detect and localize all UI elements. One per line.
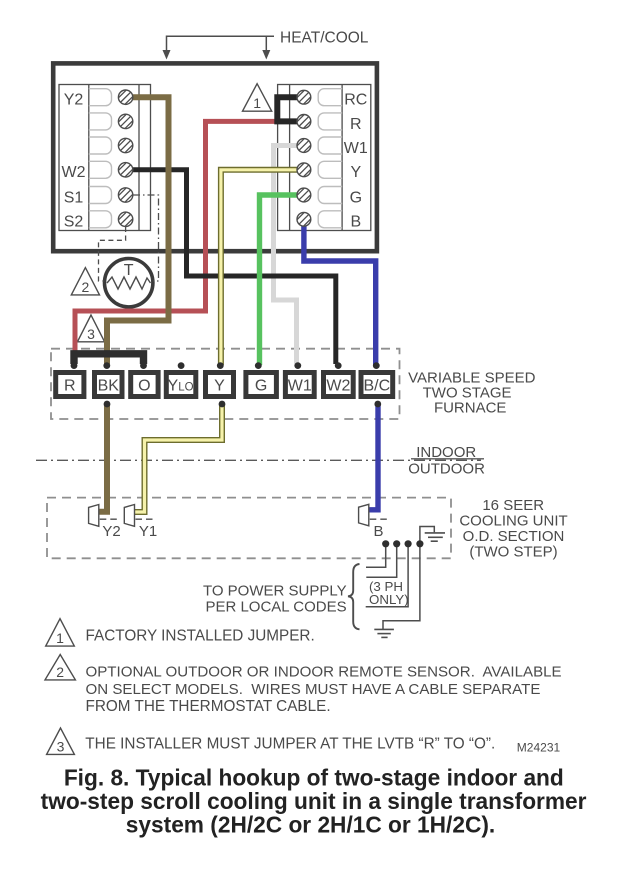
svg-text:FURNACE: FURNACE bbox=[434, 400, 507, 417]
svg-text:M24231: M24231 bbox=[517, 740, 561, 754]
svg-text:FACTORY INSTALLED JUMPER.: FACTORY INSTALLED JUMPER. bbox=[86, 627, 315, 644]
svg-text:S1: S1 bbox=[64, 189, 84, 206]
svg-text:W1: W1 bbox=[288, 378, 312, 395]
svg-text:1: 1 bbox=[56, 630, 64, 646]
svg-text:3: 3 bbox=[87, 326, 95, 342]
svg-text:OPTIONAL OUTDOOR OR INDOOR REM: OPTIONAL OUTDOOR OR INDOOR REMOTE SENSOR… bbox=[86, 664, 562, 681]
svg-text:O.D. SECTION: O.D. SECTION bbox=[463, 528, 565, 545]
svg-text:Fig. 8. Typical hookup of two-: Fig. 8. Typical hookup of two-stage indo… bbox=[64, 765, 564, 791]
svg-text:W2: W2 bbox=[62, 164, 86, 181]
svg-text:OUTDOOR: OUTDOOR bbox=[408, 461, 485, 478]
svg-text:16 SEER: 16 SEER bbox=[482, 497, 544, 514]
svg-text:INDOOR: INDOOR bbox=[416, 444, 476, 461]
svg-text:HEAT/COOL: HEAT/COOL bbox=[280, 30, 369, 47]
svg-text:Y2: Y2 bbox=[64, 92, 84, 109]
svg-text:2: 2 bbox=[56, 664, 64, 680]
svg-text:B/C: B/C bbox=[364, 378, 391, 395]
svg-text:BK: BK bbox=[98, 378, 120, 395]
svg-text:two-step scroll cooling unit i: two-step scroll cooling unit in a single… bbox=[41, 788, 587, 814]
svg-text:Y: Y bbox=[350, 164, 361, 181]
svg-text:PER LOCAL CODES: PER LOCAL CODES bbox=[205, 599, 346, 616]
svg-text:W2: W2 bbox=[326, 378, 350, 395]
svg-text:R: R bbox=[350, 116, 362, 133]
svg-text:FROM THE THERMOSTAT CABLE.: FROM THE THERMOSTAT CABLE. bbox=[86, 698, 331, 715]
svg-text:G: G bbox=[255, 378, 267, 395]
svg-text:TO POWER SUPPLY: TO POWER SUPPLY bbox=[203, 583, 347, 600]
svg-text:Y2: Y2 bbox=[102, 523, 120, 540]
svg-text:ON SELECT MODELS. WIRES MUST: ON SELECT MODELS. WIRES MUST HAVE A CABL… bbox=[86, 681, 541, 698]
svg-text:RC: RC bbox=[344, 92, 367, 109]
svg-text:B: B bbox=[374, 523, 384, 540]
svg-text:Y: Y bbox=[214, 378, 225, 395]
svg-text:B: B bbox=[350, 214, 361, 231]
svg-text:3: 3 bbox=[57, 738, 65, 754]
svg-text:THE INSTALLER MUST JUMPER AT T: THE INSTALLER MUST JUMPER AT THE LVTB “R… bbox=[85, 736, 495, 753]
svg-text:COOLING UNIT: COOLING UNIT bbox=[459, 513, 567, 530]
svg-text:(TWO STEP): (TWO STEP) bbox=[469, 544, 557, 561]
svg-text:ONLY): ONLY) bbox=[369, 592, 409, 607]
svg-text:T: T bbox=[124, 262, 134, 279]
svg-text:2: 2 bbox=[82, 279, 90, 295]
svg-text:system (2H/2C or 2H/1C or 1H/2: system (2H/2C or 2H/1C or 1H/2C). bbox=[126, 811, 495, 837]
svg-text:S2: S2 bbox=[64, 214, 84, 231]
svg-text:W1: W1 bbox=[344, 140, 368, 157]
svg-text:Y1: Y1 bbox=[139, 523, 157, 540]
svg-text:O: O bbox=[138, 378, 150, 395]
svg-text:G: G bbox=[350, 189, 362, 206]
svg-text:R: R bbox=[64, 378, 76, 395]
svg-text:1: 1 bbox=[253, 95, 261, 111]
